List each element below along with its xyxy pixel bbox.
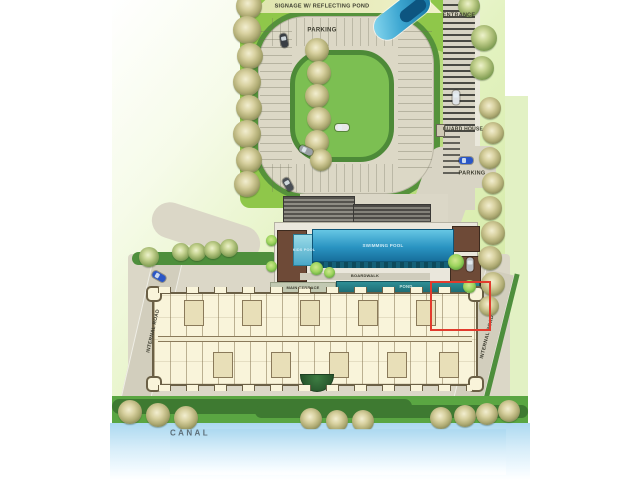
- tree-icon: [220, 239, 238, 257]
- tree-icon: [307, 107, 331, 131]
- tree-icon: [236, 147, 262, 173]
- entrance-road-stripes: [443, 136, 460, 174]
- site-plan: SIGNAGE W/ REFLECTING POND PARKING ENTRA…: [0, 0, 640, 480]
- car-icon: [453, 91, 460, 105]
- parking-stalls: [260, 30, 292, 168]
- unit-core: [184, 300, 204, 326]
- boardwalk-label: BOARDWALK: [351, 274, 379, 278]
- unit-core: [271, 352, 291, 378]
- tree-icon: [305, 38, 329, 62]
- tree-icon: [430, 407, 452, 429]
- unit-core: [213, 352, 233, 378]
- tree-icon: [310, 149, 332, 171]
- tree-icon: [146, 403, 170, 427]
- central-corridor: [158, 336, 472, 342]
- unit-core: [300, 300, 320, 326]
- parking-label-top: PARKING: [307, 27, 336, 34]
- guard-house-label: GUARD HOUSE: [443, 126, 483, 132]
- tree-icon: [234, 171, 260, 197]
- tree-icon: [479, 147, 501, 169]
- tree-icon: [310, 262, 323, 275]
- tree-icon: [118, 400, 142, 424]
- kids-pool-label: KIDS POOL: [293, 248, 316, 252]
- car-icon: [335, 124, 349, 131]
- tree-icon: [305, 84, 329, 108]
- tree-icon: [471, 25, 497, 51]
- tree-icon: [454, 405, 476, 427]
- tree-icon: [233, 16, 261, 44]
- tree-icon: [237, 43, 263, 69]
- pool-infinity-edge: [312, 262, 454, 268]
- main-terrace-label: MAIN TERRACE: [286, 286, 319, 290]
- tree-icon: [479, 97, 501, 119]
- unit-core: [242, 300, 262, 326]
- parking-stalls: [398, 30, 432, 168]
- balcony-bays: [158, 385, 472, 391]
- tree-icon: [482, 122, 504, 144]
- signage-label: SIGNAGE W/ REFLECTING POND: [275, 3, 370, 9]
- tree-icon: [481, 221, 505, 245]
- highlighted-unit-outline[interactable]: [430, 281, 491, 331]
- tree-icon: [266, 235, 277, 246]
- tree-icon: [478, 246, 502, 270]
- tree-icon: [476, 403, 498, 425]
- tree-icon: [233, 68, 261, 96]
- parking-label-right: PARKING: [459, 170, 486, 176]
- unit-core: [358, 300, 378, 326]
- unit-core: [387, 352, 407, 378]
- tree-icon: [324, 267, 335, 278]
- tree-icon: [174, 406, 198, 430]
- canal-label: CANAL: [170, 429, 506, 475]
- car-icon: [467, 258, 474, 272]
- tree-icon: [233, 120, 261, 148]
- tree-icon: [478, 196, 502, 220]
- tree-icon: [266, 261, 277, 272]
- tree-icon: [236, 95, 262, 121]
- car-icon: [459, 157, 473, 164]
- swimming-pool-label: SWIMMING POOL: [363, 244, 404, 249]
- tree-icon: [498, 400, 520, 422]
- entrance-label: ENTRANCE: [443, 12, 476, 18]
- tree-icon: [139, 247, 159, 267]
- clubhouse-building: [452, 226, 480, 252]
- unit-core: [439, 352, 459, 378]
- tree-icon: [470, 56, 494, 80]
- pond-label: POND: [400, 285, 413, 290]
- tree-icon: [307, 61, 331, 85]
- tree-icon: [448, 254, 464, 270]
- tree-icon: [300, 408, 322, 430]
